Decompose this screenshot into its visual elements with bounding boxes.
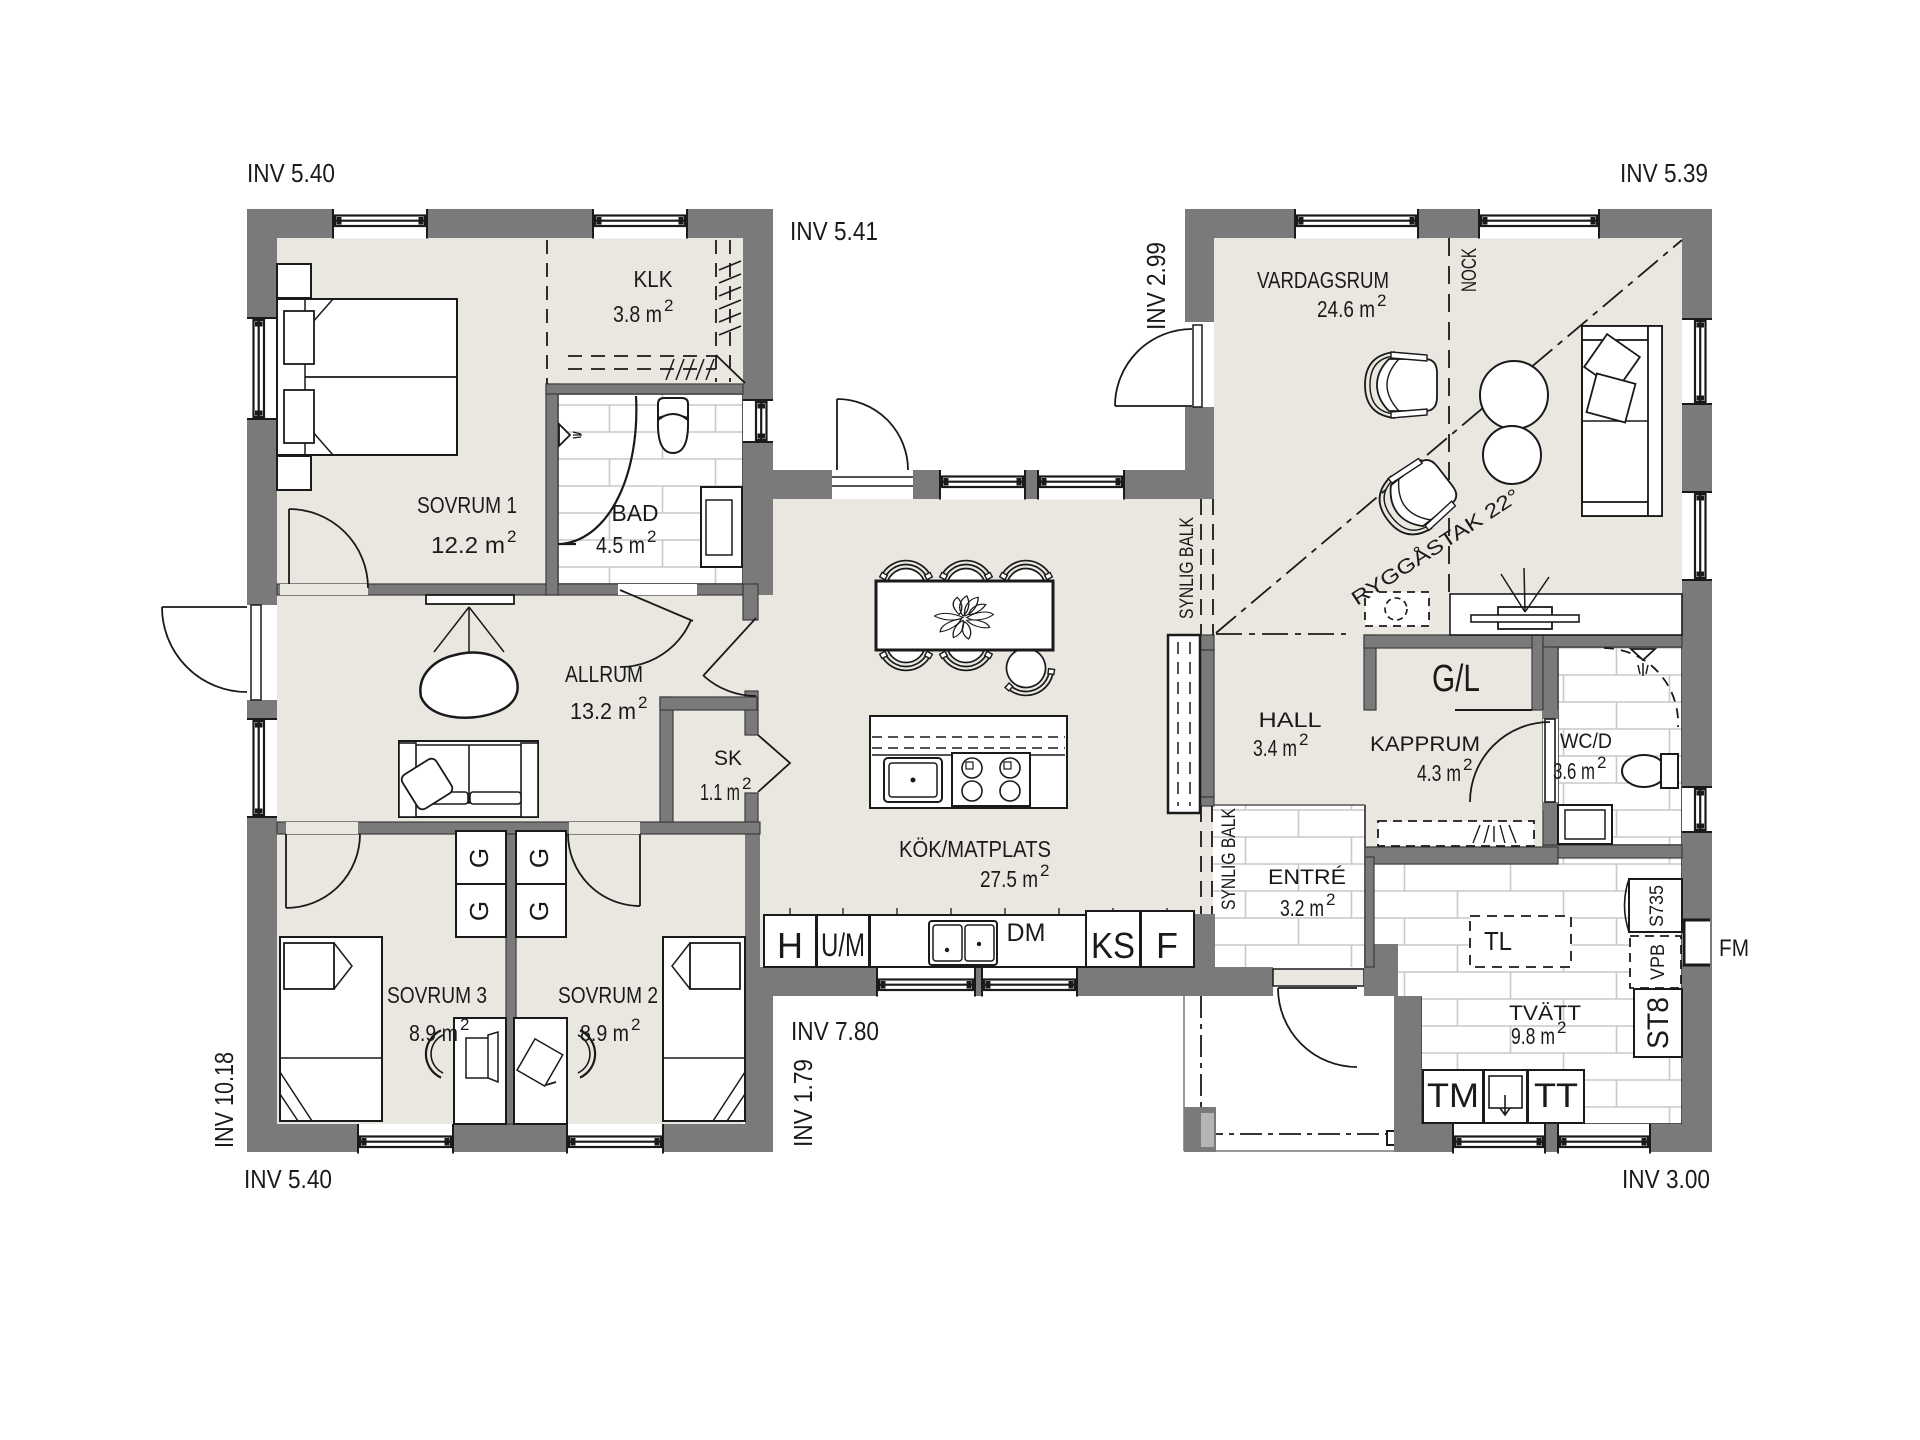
svg-text:1.1 m: 1.1 m <box>700 779 740 805</box>
svg-text:TM: TM <box>1427 1077 1479 1115</box>
svg-text:4.3 m: 4.3 m <box>1417 760 1461 786</box>
svg-text:2: 2 <box>664 296 673 315</box>
svg-text:3.2 m: 3.2 m <box>1280 895 1324 921</box>
svg-text:2: 2 <box>1377 291 1386 310</box>
svg-text:SOVRUM 1: SOVRUM 1 <box>417 492 517 518</box>
svg-text:INV 5.41: INV 5.41 <box>790 216 878 246</box>
svg-text:SOVRUM 2: SOVRUM 2 <box>558 982 658 1008</box>
svg-text:SOVRUM 3: SOVRUM 3 <box>387 982 487 1008</box>
svg-text:KAPPRUM: KAPPRUM <box>1370 733 1480 756</box>
svg-text:WC/D: WC/D <box>1560 730 1612 753</box>
svg-text:INV 7.80: INV 7.80 <box>791 1016 879 1046</box>
svg-text:9.8 m: 9.8 m <box>1511 1023 1555 1049</box>
svg-text:2: 2 <box>647 527 656 546</box>
svg-text:24.6 m: 24.6 m <box>1317 296 1375 322</box>
svg-text:S735: S735 <box>1647 885 1668 927</box>
svg-text:DM: DM <box>1007 919 1046 947</box>
svg-text:INV 5.40: INV 5.40 <box>244 1164 332 1194</box>
svg-text:2: 2 <box>638 693 647 712</box>
svg-text:4.5 m: 4.5 m <box>596 532 645 558</box>
svg-text:13.2 m: 13.2 m <box>570 698 636 724</box>
svg-text:2: 2 <box>1597 753 1606 772</box>
svg-text:G: G <box>464 901 494 921</box>
svg-text:INV 10.18: INV 10.18 <box>209 1052 239 1148</box>
svg-text:27.5 m: 27.5 m <box>980 866 1038 892</box>
svg-text:8.9 m: 8.9 m <box>409 1020 458 1046</box>
svg-text:2: 2 <box>1463 755 1472 774</box>
svg-text:2: 2 <box>631 1015 640 1034</box>
svg-text:2: 2 <box>1299 730 1308 749</box>
svg-text:3.6 m: 3.6 m <box>1553 758 1595 784</box>
svg-text:KS: KS <box>1091 925 1135 966</box>
svg-text:INV 5.40: INV 5.40 <box>247 158 335 188</box>
svg-text:BAD: BAD <box>612 500 659 526</box>
svg-text:2: 2 <box>742 774 751 793</box>
svg-text:2: 2 <box>1326 890 1335 909</box>
svg-text:HALL: HALL <box>1259 709 1322 732</box>
svg-text:ST8: ST8 <box>1642 997 1675 1049</box>
svg-text:SK: SK <box>714 747 742 770</box>
svg-text:INV 3.00: INV 3.00 <box>1622 1164 1710 1194</box>
svg-text:TL: TL <box>1484 926 1512 956</box>
svg-text:2: 2 <box>507 527 516 546</box>
svg-text:FM: FM <box>1719 935 1749 962</box>
svg-text:VPB: VPB <box>1648 944 1669 980</box>
svg-text:INV 2.99: INV 2.99 <box>1141 242 1171 330</box>
svg-text:H: H <box>777 925 803 966</box>
svg-text:ENTRÉ: ENTRÉ <box>1268 866 1346 889</box>
svg-text:NOCK: NOCK <box>1458 248 1481 292</box>
svg-text:G/L: G/L <box>1432 658 1480 700</box>
svg-text:3.8 m: 3.8 m <box>613 301 662 327</box>
svg-text:G: G <box>464 848 494 868</box>
svg-text:2: 2 <box>460 1015 469 1034</box>
svg-text:VARDAGSRUM: VARDAGSRUM <box>1257 267 1389 293</box>
svg-text:TT: TT <box>1534 1077 1578 1115</box>
svg-text:2: 2 <box>1557 1018 1566 1037</box>
svg-text:INV 1.79: INV 1.79 <box>788 1059 818 1147</box>
svg-text:KLK: KLK <box>634 266 674 292</box>
svg-text:KÖK/MATPLATS: KÖK/MATPLATS <box>899 836 1051 862</box>
svg-text:8.9 m: 8.9 m <box>580 1020 629 1046</box>
svg-text:G: G <box>524 848 554 868</box>
svg-text:12.2 m: 12.2 m <box>431 532 505 558</box>
svg-text:2: 2 <box>1040 861 1049 880</box>
svg-text:3.4 m: 3.4 m <box>1253 735 1297 761</box>
svg-text:SYNLIG BALK: SYNLIG BALK <box>1219 808 1240 910</box>
svg-text:ALLRUM: ALLRUM <box>565 661 643 687</box>
svg-text:INV 5.39: INV 5.39 <box>1620 158 1708 188</box>
svg-text:TVÄTT: TVÄTT <box>1509 1002 1581 1025</box>
svg-text:F: F <box>1156 925 1178 966</box>
svg-text:SYNLIG BALK: SYNLIG BALK <box>1177 517 1198 619</box>
svg-text:U/M: U/M <box>821 927 865 963</box>
svg-text:G: G <box>524 901 554 921</box>
